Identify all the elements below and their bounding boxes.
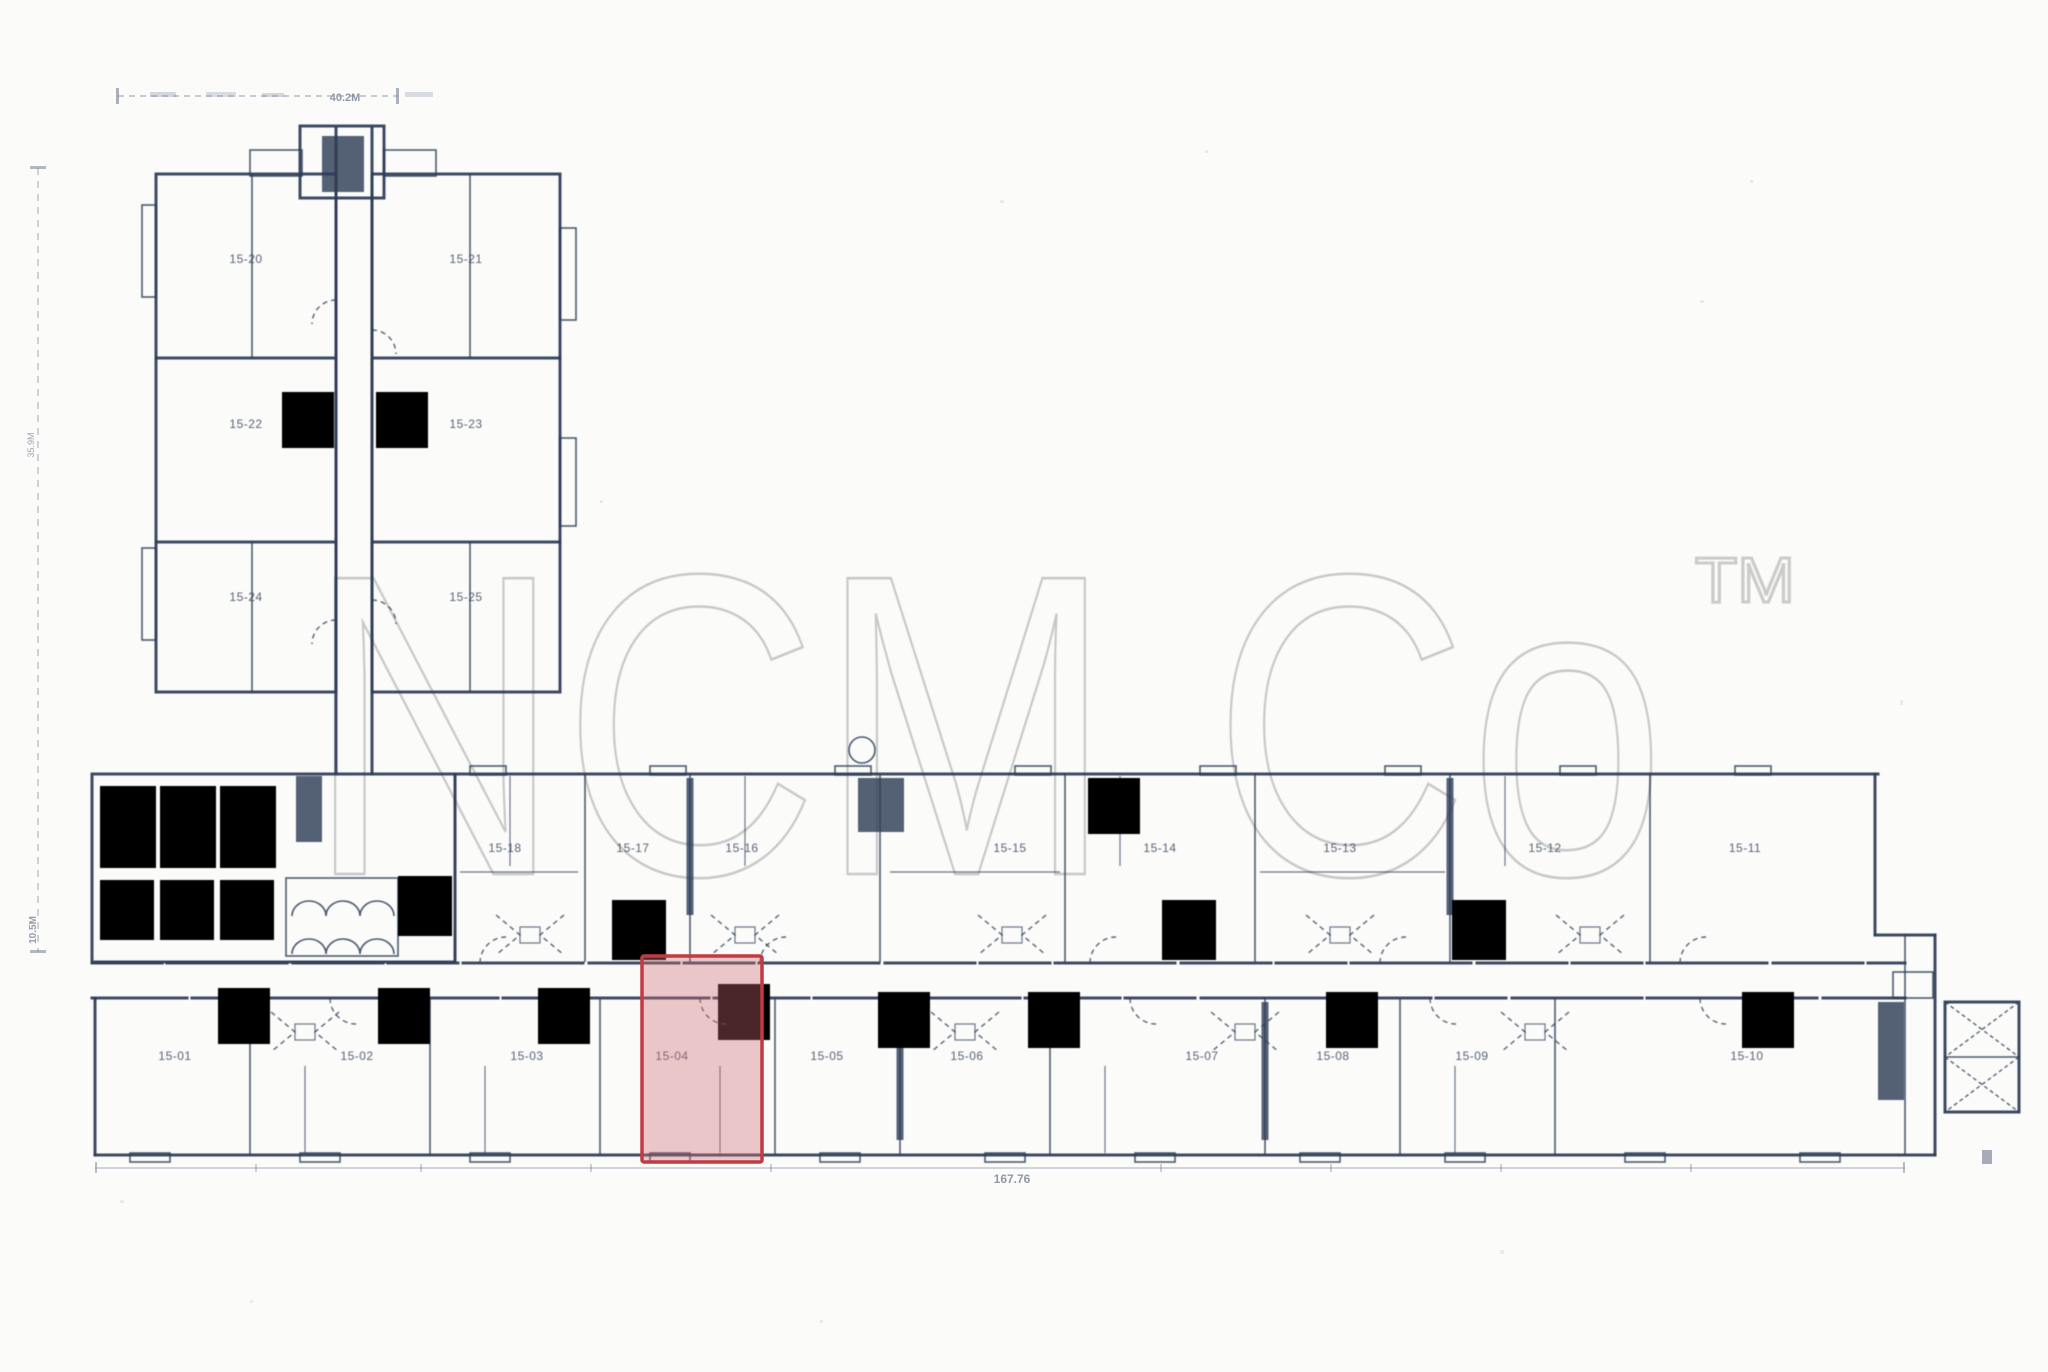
unit-label: 15-14 bbox=[1143, 841, 1176, 855]
unit-label: 15-22 bbox=[229, 417, 262, 431]
unit-label: 15-01 bbox=[158, 1049, 191, 1063]
stair-shaft bbox=[1878, 1002, 1904, 1100]
unit-label: 15-09 bbox=[1455, 1049, 1488, 1063]
unit-label: 15-18 bbox=[488, 841, 521, 855]
dimension-label-left-lower: 10.5M bbox=[28, 916, 39, 944]
elevator-shaft bbox=[296, 776, 322, 842]
unit-label: 15-20 bbox=[229, 252, 262, 266]
trademark-symbol: TM bbox=[1695, 544, 1795, 616]
unit-label: 15-10 bbox=[1730, 1049, 1763, 1063]
unit-label: 15-15 bbox=[993, 841, 1026, 855]
floor-plan-scan: NCM Co TM bbox=[0, 0, 2048, 1372]
unit-label: 15-02 bbox=[340, 1049, 373, 1063]
unit-label: 15-21 bbox=[449, 252, 482, 266]
unit-label: 15-24 bbox=[229, 590, 262, 604]
watermark-text: NCM Co bbox=[306, 486, 1666, 966]
elevator-shaft bbox=[858, 778, 904, 832]
dimension-label-bottom: 167.76 bbox=[994, 1172, 1031, 1186]
dimension-label-top: 40.2M bbox=[330, 92, 361, 104]
floor-plan-page: NCM Co TM bbox=[0, 0, 2048, 1372]
unit-label: 15-05 bbox=[810, 1049, 843, 1063]
unit-label: 15-17 bbox=[616, 841, 649, 855]
unit-label: 15-13 bbox=[1323, 841, 1356, 855]
unit-label: 15-08 bbox=[1316, 1049, 1349, 1063]
unit-label: 15-11 bbox=[1729, 841, 1761, 855]
unit-label: 15-03 bbox=[510, 1049, 543, 1063]
unit-label: 15-06 bbox=[950, 1049, 983, 1063]
unit-label: 15-12 bbox=[1528, 841, 1561, 855]
unit-label: 15-16 bbox=[725, 841, 758, 855]
dimension-label-left: 35.9M bbox=[26, 432, 36, 457]
unit-label: 15-07 bbox=[1185, 1049, 1218, 1063]
unit-label: 15-25 bbox=[449, 590, 482, 604]
highlighted-unit-overlay bbox=[642, 956, 762, 1162]
unit-label: 15-23 bbox=[449, 417, 482, 431]
